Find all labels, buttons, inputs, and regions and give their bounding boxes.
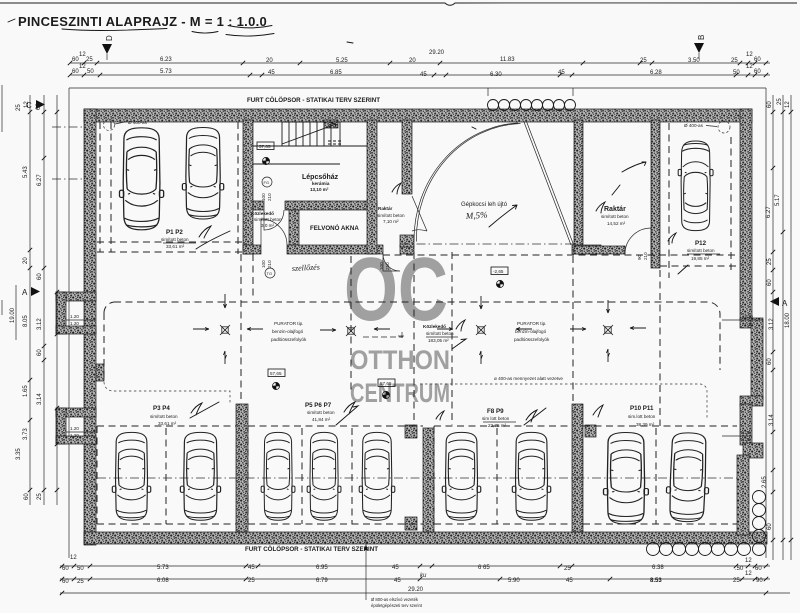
svg-text:PINCESZINTI ALAPRAJZ - M = 1 :: PINCESZINTI ALAPRAJZ - M = 1 : 1.0.0 [18, 14, 267, 29]
svg-text:8.05: 8.05 [23, 315, 29, 327]
svg-text:P1 P2: P1 P2 [166, 229, 183, 236]
svg-text:1.20: 1.20 [744, 322, 753, 327]
svg-text:3.14: 3.14 [769, 414, 775, 426]
svg-text:8.53: 8.53 [650, 578, 662, 584]
svg-text:CENTRUM: CENTRUM [350, 378, 450, 408]
svg-text:5.43: 5.43 [23, 166, 29, 178]
svg-text:60: 60 [754, 69, 761, 75]
svg-text:1.20: 1.20 [742, 430, 751, 435]
svg-text:19.00: 19.00 [10, 307, 16, 323]
svg-text:25: 25 [640, 58, 647, 64]
svg-text:38,39 m²: 38,39 m² [636, 422, 655, 427]
svg-text:5.17: 5.17 [775, 194, 781, 206]
svg-text:6.95: 6.95 [316, 565, 328, 571]
svg-text:18.00: 18.00 [785, 312, 791, 328]
svg-text:45: 45 [558, 70, 565, 76]
svg-text:TG: TG [267, 271, 273, 276]
svg-text:5.25: 5.25 [336, 58, 348, 64]
svg-text:padlóösszefolyók: padlóösszefolyók [514, 337, 550, 342]
svg-text:Raktár: Raktár [378, 206, 393, 211]
svg-text:12: 12 [746, 52, 753, 58]
svg-text:FG: FG [264, 180, 270, 185]
svg-text:45: 45 [420, 72, 427, 78]
svg-text:simított beton: simított beton [307, 410, 335, 415]
svg-text:60: 60 [37, 273, 43, 280]
svg-text:Közlekedő: Közlekedő [423, 324, 446, 329]
svg-text:100: 100 [379, 262, 384, 270]
svg-text:1.65: 1.65 [23, 385, 29, 397]
svg-text:P3 P4: P3 P4 [153, 405, 170, 412]
svg-text:FELVONÓ AKNA: FELVONÓ AKNA [310, 224, 359, 232]
svg-text:25: 25 [86, 57, 93, 63]
svg-text:simított beton: simított beton [254, 217, 282, 222]
svg-text:19,85 m²: 19,85 m² [691, 256, 710, 261]
svg-text:60: 60 [767, 101, 773, 108]
svg-text:simított beton: simított beton [601, 214, 629, 219]
svg-text:50: 50 [77, 566, 84, 572]
svg-text:sim lott beton: sim lott beton [482, 416, 510, 421]
svg-text:90: 90 [637, 254, 642, 260]
svg-text:60: 60 [767, 279, 773, 286]
svg-text:60: 60 [62, 579, 69, 585]
svg-text:210: 210 [643, 252, 648, 260]
svg-text:FURT CÖLÖPSOR - STATIKAI TERV: FURT CÖLÖPSOR - STATIKAI TERV SZERINT [245, 546, 378, 553]
svg-text:ku: ku [420, 573, 427, 579]
svg-text:1.20: 1.20 [70, 433, 79, 438]
svg-text:6.08: 6.08 [157, 578, 169, 584]
svg-text:210: 210 [267, 260, 272, 268]
svg-text:OTTHON: OTTHON [350, 345, 450, 375]
svg-text:50: 50 [733, 70, 740, 76]
svg-text:6.27: 6.27 [766, 206, 772, 218]
svg-text:sim.lott beton: sim.lott beton [628, 414, 656, 419]
svg-text:12: 12 [745, 571, 752, 577]
svg-text:M,5%: M,5% [464, 210, 487, 222]
svg-text:57,65: 57,65 [259, 144, 271, 149]
svg-text:simított beton: simított beton [161, 237, 189, 242]
svg-text:-2,65: -2,65 [493, 269, 504, 274]
svg-text:D: D [105, 35, 114, 41]
svg-text:25: 25 [77, 579, 84, 585]
svg-text:60: 60 [62, 566, 69, 572]
svg-text:6.27: 6.27 [37, 174, 43, 186]
svg-text:90: 90 [756, 578, 763, 584]
svg-text:F8 P9: F8 P9 [487, 408, 504, 415]
svg-text:22,75 m²: 22,75 m² [488, 423, 507, 428]
svg-text:57,65: 57,65 [380, 381, 392, 386]
svg-text:Lépcsőház: Lépcsőház [302, 174, 339, 181]
svg-text:60: 60 [754, 57, 761, 63]
svg-text:14,52 m²: 14,52 m² [607, 221, 626, 226]
svg-text:Raktár: Raktár [604, 206, 626, 213]
svg-text:simított beton: simított beton [426, 331, 454, 336]
svg-text:1.20: 1.20 [70, 426, 79, 431]
svg-text:100: 100 [261, 260, 266, 268]
svg-text:25: 25 [777, 98, 783, 105]
svg-text:12: 12 [24, 101, 30, 108]
svg-text:Közlekedő: Közlekedő [251, 211, 274, 216]
svg-text:simított beton: simított beton [150, 414, 178, 419]
svg-text:6.30: 6.30 [490, 72, 502, 78]
svg-text:25: 25 [37, 493, 43, 500]
svg-text:FURT CÖLÖPSOR - STATIKAI TERV: FURT CÖLÖPSOR - STATIKAI TERV SZERINT [247, 97, 380, 104]
svg-text:25: 25 [733, 578, 740, 584]
svg-text:29.20: 29.20 [429, 50, 445, 56]
svg-text:PURATOR tip.: PURATOR tip. [274, 321, 303, 326]
svg-text:5.73: 5.73 [157, 565, 169, 571]
svg-text:3.35: 3.35 [16, 448, 22, 460]
svg-text:45: 45 [268, 70, 275, 76]
svg-text:6.85: 6.85 [330, 70, 342, 76]
svg-text:7,10 m²: 7,10 m² [383, 219, 399, 224]
svg-text:33,61 m²: 33,61 m² [166, 244, 185, 249]
svg-text:3.50: 3.50 [688, 58, 700, 64]
svg-text:45: 45 [394, 578, 401, 584]
svg-text:szellőzés: szellőzés [292, 263, 320, 273]
svg-text:1.20: 1.20 [70, 314, 79, 319]
svg-text:11.83: 11.83 [500, 57, 515, 63]
svg-text:12: 12 [746, 64, 753, 70]
svg-text:12: 12 [70, 555, 77, 561]
svg-text:6 65: 6 65 [478, 565, 490, 571]
svg-text:kerámia: kerámia [312, 181, 330, 186]
svg-text:3,0 m²: 3,0 m² [261, 223, 274, 228]
svg-text:6.28: 6.28 [650, 70, 662, 76]
svg-text:25: 25 [731, 58, 738, 64]
svg-text:12: 12 [79, 64, 86, 70]
svg-text:.50: .50 [735, 566, 744, 572]
svg-text:simított beton: simított beton [377, 213, 405, 218]
svg-text:Ø 400-as: Ø 400-as [684, 123, 704, 128]
svg-text:1.20: 1.20 [744, 314, 753, 319]
svg-text:P5 P6 P7: P5 P6 P7 [305, 402, 332, 409]
svg-text:60: 60 [24, 493, 30, 500]
svg-text:210: 210 [385, 262, 390, 270]
svg-text:60: 60 [36, 103, 42, 110]
svg-text:20: 20 [23, 257, 29, 264]
svg-text:25: 25 [767, 258, 773, 265]
svg-text:183,05 m²: 183,05 m² [428, 338, 449, 343]
svg-text:5.73: 5.73 [160, 69, 172, 75]
svg-text:25: 25 [16, 104, 22, 111]
svg-text:padlóösszefolyók: padlóösszefolyók [271, 337, 307, 342]
svg-text:13,10 m²: 13,10 m² [310, 187, 329, 192]
svg-text:Gépkocsi leh újtó: Gépkocsi leh újtó [461, 202, 508, 208]
svg-text:50: 50 [87, 69, 94, 75]
svg-text:épületgépészeti terv szerint: épületgépészeti terv szerint [371, 603, 423, 608]
svg-text:210: 210 [267, 193, 272, 201]
svg-text:Ø 800-as elszívó vezeték: Ø 800-as elszívó vezeték [371, 597, 419, 602]
svg-text:P12: P12 [695, 240, 707, 247]
svg-text:100: 100 [261, 193, 266, 201]
svg-text:A: A [22, 288, 28, 297]
svg-text:45: 45 [566, 578, 573, 584]
svg-text:60: 60 [767, 523, 773, 530]
svg-text:ø 400-as mennyezet alatt vezet: ø 400-as mennyezet alatt vezetve [494, 376, 563, 381]
svg-text:3.12: 3.12 [769, 318, 775, 330]
svg-text:benzin-olajfogó: benzin-olajfogó [515, 329, 547, 334]
svg-text:45: 45 [392, 565, 399, 571]
svg-text:25: 25 [564, 566, 571, 572]
svg-text:PURATOR tip.: PURATOR tip. [517, 321, 546, 326]
svg-text:1.20: 1.20 [742, 437, 751, 442]
svg-text:20: 20 [409, 58, 416, 64]
svg-text:6.38: 6.38 [652, 565, 664, 571]
svg-text:25: 25 [248, 578, 255, 584]
svg-text:29.20: 29.20 [408, 587, 424, 593]
svg-text:57,65: 57,65 [270, 371, 282, 376]
svg-text:12: 12 [745, 558, 752, 564]
svg-text:6.23: 6.23 [160, 57, 172, 63]
svg-text:60: 60 [37, 349, 43, 356]
svg-text:60: 60 [767, 358, 773, 365]
svg-text:3.14: 3.14 [37, 393, 43, 405]
svg-text:B: B [697, 35, 706, 40]
svg-text:simított beton: simított beton [687, 248, 715, 253]
svg-text:3.73: 3.73 [23, 428, 29, 440]
svg-text:benzin-olajfogó: benzin-olajfogó [272, 329, 304, 334]
svg-text:1.20: 1.20 [70, 321, 79, 326]
svg-text:2.65: 2.65 [762, 476, 768, 488]
svg-text:P10 P11: P10 P11 [630, 405, 654, 412]
svg-text:60: 60 [755, 566, 762, 572]
svg-text:Ø 400-as: Ø 400-as [128, 120, 148, 125]
svg-text:33,61 m²: 33,61 m² [158, 421, 177, 426]
svg-text:45: 45 [248, 565, 255, 571]
svg-text:3.12: 3.12 [37, 318, 43, 330]
svg-text:41,84 m²: 41,84 m² [312, 417, 331, 422]
svg-text:5.90: 5.90 [508, 578, 520, 584]
svg-text:6.79: 6.79 [316, 578, 328, 584]
svg-text:12: 12 [785, 101, 791, 108]
svg-text:20: 20 [266, 58, 273, 64]
